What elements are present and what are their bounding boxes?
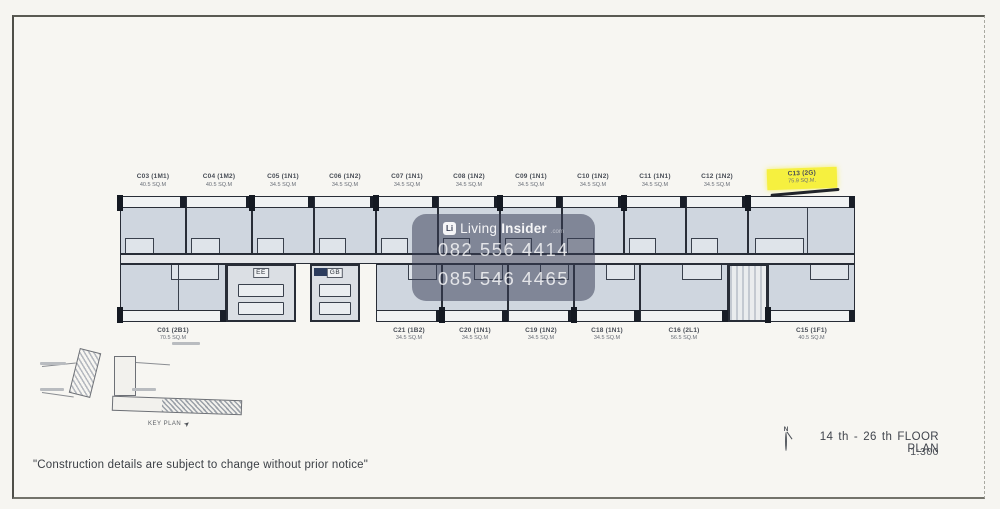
keyplan-north-arrow-icon: ➤ (182, 419, 192, 429)
keyplan-building-hatched (69, 348, 101, 398)
room-area (253, 208, 313, 253)
floorplan-unit: C13 (2G)75.9 SQ.M. (748, 196, 855, 254)
floorplan-unit: C04 (1M2)40.5 SQ.M (186, 196, 252, 254)
service-core: EE (226, 264, 296, 322)
shear-wall-column (621, 195, 627, 211)
floorplan-unit: C03 (1M1)40.5 SQ.M (120, 196, 186, 254)
building-gap (296, 264, 310, 322)
floorplan-unit: C16 (2L1)56.5 SQ.M (640, 264, 728, 322)
watermark-brand: Li LivingInsider .com (443, 222, 564, 236)
unit-code: C01 (2B1) (128, 327, 218, 335)
north-compass-icon (785, 432, 787, 451)
brand-insider: Insider (501, 222, 547, 236)
shear-wall-column (249, 195, 255, 211)
shear-wall-column (745, 195, 751, 211)
keyplan-micro-label (172, 342, 200, 345)
unit-code: C15 (1F1) (767, 327, 857, 335)
balcony-strip (687, 197, 747, 208)
bathroom-box (319, 238, 347, 253)
room-area (315, 208, 375, 253)
key-plan: KEY PLAN ➤ (40, 342, 245, 437)
partition-wall (178, 265, 179, 310)
room-area (687, 208, 747, 253)
bathroom-box (755, 238, 803, 253)
unit-label: C16 (2L1)56.5 SQ.M (639, 327, 729, 343)
bathroom-box (125, 238, 154, 253)
balcony-strip (443, 310, 507, 321)
bathroom-box (810, 265, 849, 280)
service-core: GB (310, 264, 360, 322)
lift-box (319, 302, 351, 315)
keyplan-micro-label (40, 388, 64, 391)
core-label-ee: EE (253, 268, 269, 278)
balcony-strip (575, 310, 639, 321)
lift-box (238, 302, 284, 315)
bathroom-box (606, 265, 635, 280)
bathroom-box (381, 238, 409, 253)
balcony-strip (187, 197, 251, 208)
unit-area: 34.5 SQ.M (672, 182, 762, 189)
shear-wall-column (117, 307, 123, 323)
brand-suffix: .com (551, 229, 564, 235)
room-area (749, 208, 854, 253)
floor-plan-scale: 1:300 (797, 446, 939, 458)
unit-area: 40.5 SQ.M (767, 335, 857, 342)
shaft-block (314, 268, 327, 276)
core-label-gb: GB (327, 268, 343, 278)
unit-label: C12 (1N2)34.5 SQ.M (672, 173, 762, 189)
balcony-strip (641, 310, 727, 321)
floorplan-unit: C11 (1N1)34.5 SQ.M (624, 196, 686, 254)
floorplan-unit: C01 (2B1)70.5 SQ.M (120, 264, 226, 322)
room-area (641, 265, 727, 310)
balcony-strip (439, 197, 499, 208)
keyplan-current-tower-hatch (161, 398, 241, 414)
keyplan-caption: KEY PLAN ➤ (148, 420, 191, 428)
room-area (769, 265, 854, 310)
living-insider-logo-icon: Li (443, 222, 456, 235)
bathroom-box (191, 238, 220, 253)
balcony-strip (121, 310, 225, 321)
balcony-strip (121, 197, 185, 208)
watermark-phone-1: 082 556 4414 (438, 237, 569, 264)
shear-wall-column (765, 307, 771, 323)
balcony-strip (253, 197, 313, 208)
unit-label-highlighted: C13 (2G)75.9 SQ.M. (766, 167, 837, 190)
keyplan-tower-bar (112, 396, 242, 416)
unit-label: C01 (2B1)70.5 SQ.M (128, 327, 218, 343)
unit-code: C12 (1N2) (672, 173, 762, 181)
unit-label: C15 (1F1)40.5 SQ.M (767, 327, 857, 343)
bathroom-box (257, 238, 285, 253)
floorplan-unit: C12 (1N2)34.5 SQ.M (686, 196, 748, 254)
room-area (121, 265, 225, 310)
scanned-floor-plan-page: { "colors": { "highlight": "#f4ee40", "p… (0, 0, 1000, 509)
shear-wall-column (439, 307, 445, 323)
building-gap (360, 264, 376, 322)
unit-area: 75.9 SQ.M. (770, 178, 834, 187)
lift-box (319, 284, 351, 297)
bathroom-box (691, 238, 719, 253)
balcony-strip (509, 310, 573, 321)
shear-wall-column (571, 307, 577, 323)
balcony-strip (377, 310, 441, 321)
structural-column (849, 196, 855, 208)
construction-disclaimer: "Construction details are subject to cha… (33, 459, 368, 471)
lift-box (238, 284, 284, 297)
partition-wall (807, 208, 808, 253)
north-indicator: N (779, 426, 793, 451)
balcony-strip (377, 197, 437, 208)
balcony-strip (625, 197, 685, 208)
unit-area: 56.5 SQ.M (639, 335, 729, 342)
keyplan-micro-label (132, 388, 156, 391)
unit-code: C16 (2L1) (639, 327, 729, 335)
brand-living: Living (460, 222, 497, 236)
room-area (121, 208, 185, 253)
keyplan-caption-text: KEY PLAN (148, 421, 181, 427)
keyplan-micro-label (40, 362, 66, 365)
shear-wall-column (117, 195, 123, 211)
watermark-overlay: Li LivingInsider .com 082 556 4414 085 5… (412, 214, 595, 301)
balcony-strip (769, 310, 854, 321)
balcony-strip (501, 197, 561, 208)
floorplan-unit: C06 (1N2)34.5 SQ.M (314, 196, 376, 254)
stair-core (728, 264, 768, 322)
structural-column (849, 310, 855, 322)
balcony-strip (563, 197, 623, 208)
watermark-phone-2: 085 546 4465 (438, 266, 569, 293)
bathroom-box (682, 265, 722, 280)
balcony-strip (315, 197, 375, 208)
bathroom-box (629, 238, 657, 253)
room-area (187, 208, 251, 253)
balcony-strip (749, 197, 854, 208)
shear-wall-column (497, 195, 503, 211)
floorplan-unit: C05 (1N1)34.5 SQ.M (252, 196, 314, 254)
floorplan-unit: C15 (1F1)40.5 SQ.M (768, 264, 855, 322)
room-area (625, 208, 685, 253)
keyplan-leader-line (136, 362, 170, 365)
shear-wall-column (373, 195, 379, 211)
